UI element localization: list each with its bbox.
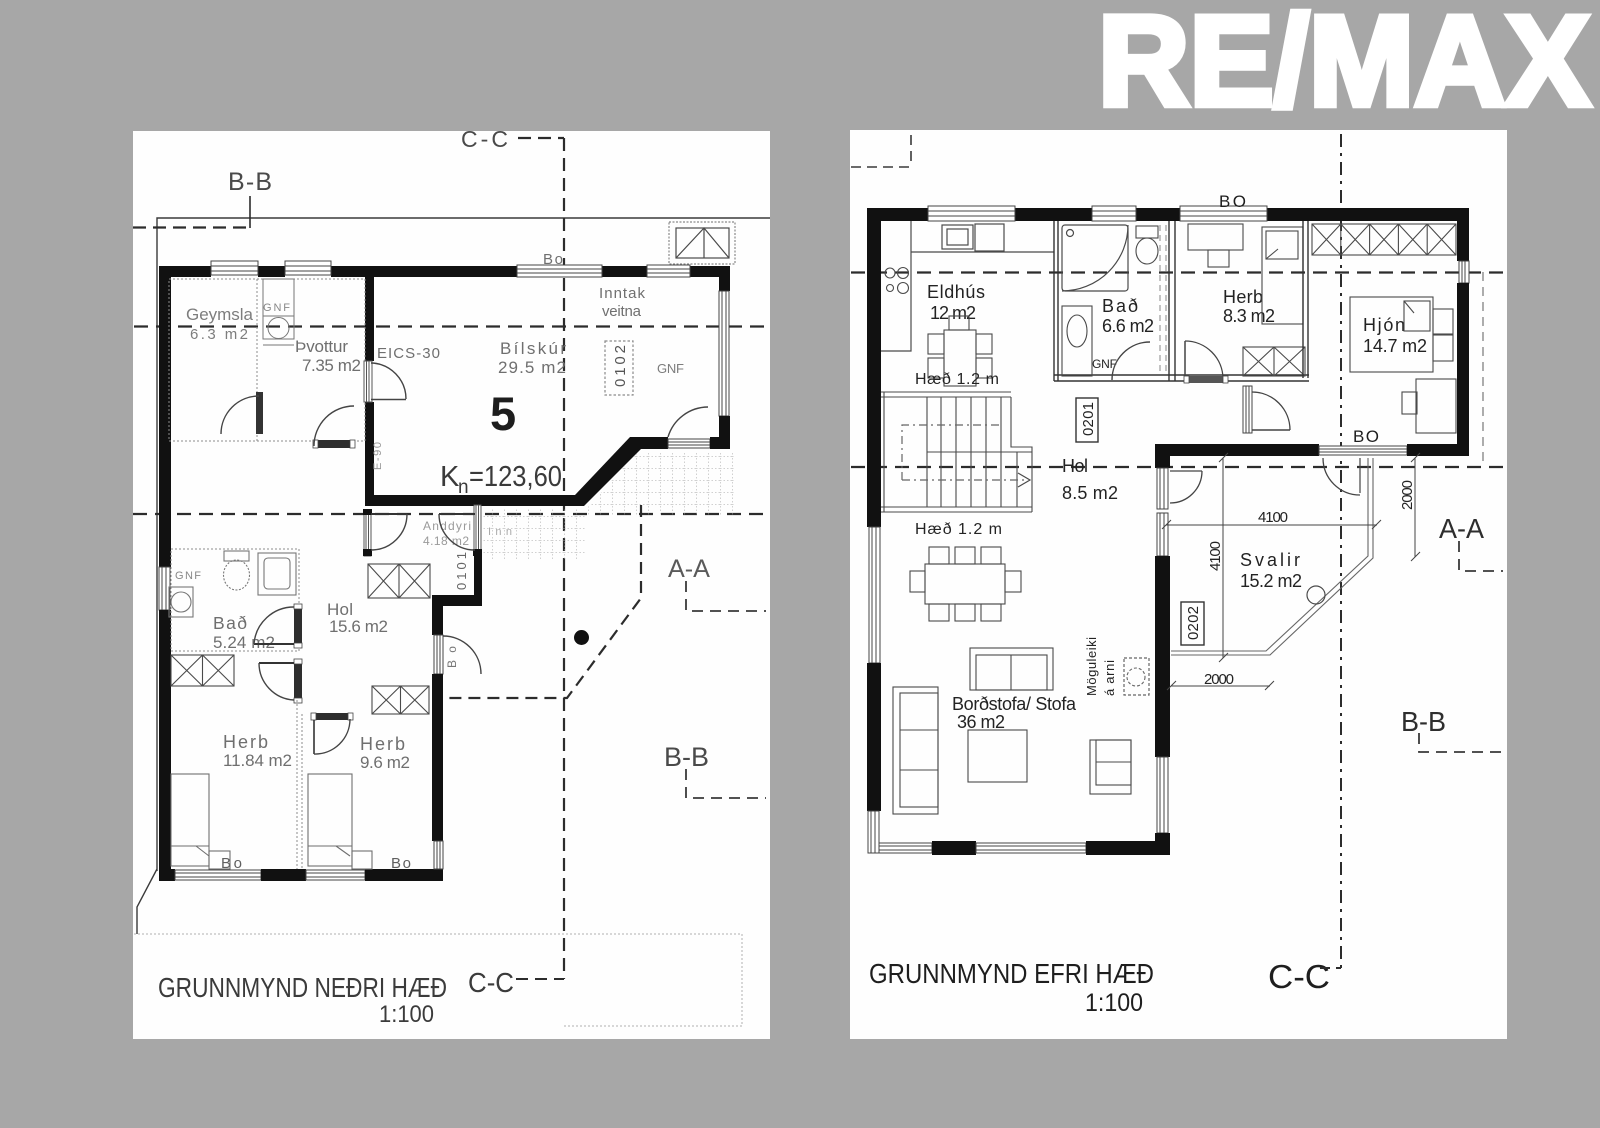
svg-text:Bo: Bo bbox=[221, 855, 242, 872]
svg-text:EICS-30: EICS-30 bbox=[377, 345, 440, 362]
svg-text:Anddyri: Anddyri bbox=[423, 519, 471, 533]
svg-text:Hol: Hol bbox=[1062, 456, 1088, 476]
svg-text:GNF: GNF bbox=[657, 361, 684, 376]
svg-text:GNF: GNF bbox=[175, 570, 201, 582]
svg-text:0102: 0102 bbox=[612, 345, 629, 387]
svg-text:7.35 m2: 7.35 m2 bbox=[302, 356, 361, 375]
svg-text:n: n bbox=[458, 477, 469, 498]
svg-text:BO: BO bbox=[1353, 427, 1379, 446]
svg-text:0101: 0101 bbox=[454, 552, 469, 590]
svg-text:29.5 m2: 29.5 m2 bbox=[498, 358, 566, 377]
svg-text:9.6 m2: 9.6 m2 bbox=[360, 753, 410, 772]
svg-text:á arni: á arni bbox=[1102, 660, 1117, 696]
svg-text:Hjón: Hjón bbox=[1363, 315, 1405, 335]
svg-text:15.6 m2: 15.6 m2 bbox=[329, 617, 388, 636]
svg-text:K: K bbox=[440, 461, 460, 493]
svg-text:5.24 m2: 5.24 m2 bbox=[213, 633, 275, 652]
svg-text:C-C: C-C bbox=[468, 967, 514, 998]
svg-text:B-B: B-B bbox=[1401, 706, 1446, 737]
svg-text:=123,60: =123,60 bbox=[469, 461, 562, 493]
svg-text:Herb: Herb bbox=[223, 732, 268, 752]
svg-text:E-90: E-90 bbox=[372, 442, 384, 470]
svg-text:Geymsla: Geymsla bbox=[186, 305, 254, 324]
svg-text:Þvottur: Þvottur bbox=[295, 337, 348, 356]
svg-text:6.6 m2: 6.6 m2 bbox=[1102, 316, 1154, 336]
svg-text:veitna: veitna bbox=[602, 303, 642, 320]
svg-text:36 m2: 36 m2 bbox=[957, 712, 1005, 732]
svg-text:Eldhús: Eldhús bbox=[927, 282, 985, 302]
svg-text:4100: 4100 bbox=[1207, 541, 1224, 571]
svg-text:Möguleiki: Möguleiki bbox=[1084, 637, 1099, 696]
svg-text:Herb: Herb bbox=[360, 734, 405, 754]
svg-text:GRUNNMYND NEÐRI HÆÐ: GRUNNMYND NEÐRI HÆÐ bbox=[158, 972, 447, 1003]
svg-text:A-A: A-A bbox=[668, 555, 710, 583]
svg-text:Bo: Bo bbox=[543, 251, 563, 268]
svg-text:4100: 4100 bbox=[1258, 509, 1288, 526]
svg-text:GNF: GNF bbox=[263, 302, 290, 314]
svg-text:8.5 m2: 8.5 m2 bbox=[1062, 483, 1118, 503]
svg-text:14.7 m2: 14.7 m2 bbox=[1363, 336, 1427, 356]
svg-text:5: 5 bbox=[490, 387, 516, 440]
svg-text:Herb: Herb bbox=[1223, 287, 1263, 307]
svg-text:RE/MAX: RE/MAX bbox=[1098, 0, 1590, 120]
svg-text:A-A: A-A bbox=[1439, 513, 1484, 544]
svg-text:B-B: B-B bbox=[664, 742, 709, 772]
svg-text:Bílskúr: Bílskúr bbox=[500, 339, 566, 358]
svg-text:15.2 m2: 15.2 m2 bbox=[1240, 571, 1302, 591]
svg-text:B-B: B-B bbox=[228, 168, 272, 196]
svg-text:Hæð 1.2 m: Hæð 1.2 m bbox=[915, 371, 999, 388]
svg-text:Bo: Bo bbox=[391, 855, 411, 872]
svg-text:C-C: C-C bbox=[461, 131, 508, 152]
svg-text:GRUNNMYND EFRI HÆÐ: GRUNNMYND EFRI HÆÐ bbox=[869, 958, 1154, 989]
svg-text:0201: 0201 bbox=[1080, 402, 1097, 436]
svg-text:2000: 2000 bbox=[1204, 671, 1234, 688]
svg-text:Inntak: Inntak bbox=[599, 285, 646, 302]
svg-text:BO: BO bbox=[1219, 192, 1246, 211]
svg-text:0202: 0202 bbox=[1185, 606, 1202, 640]
svg-text:Bo: Bo bbox=[445, 646, 459, 668]
svg-text:Borðstofa/ Stofa: Borðstofa/ Stofa bbox=[952, 694, 1077, 714]
svg-text:Bað: Bað bbox=[1102, 296, 1138, 316]
svg-text:Hæð 1.2 m: Hæð 1.2 m bbox=[915, 521, 1002, 538]
svg-text:8.3 m2: 8.3 m2 bbox=[1223, 306, 1275, 326]
svg-text:Svalir: Svalir bbox=[1240, 550, 1300, 570]
svg-text:2000: 2000 bbox=[1399, 480, 1416, 510]
svg-text:Bað: Bað bbox=[213, 613, 247, 633]
svg-text:11.84 m2: 11.84 m2 bbox=[223, 751, 292, 770]
svg-text:C-C: C-C bbox=[1268, 958, 1330, 995]
svg-text:1:100: 1:100 bbox=[1085, 989, 1143, 1017]
svg-text:6.3 m2: 6.3 m2 bbox=[190, 326, 248, 343]
svg-text:1:100: 1:100 bbox=[379, 1001, 434, 1028]
